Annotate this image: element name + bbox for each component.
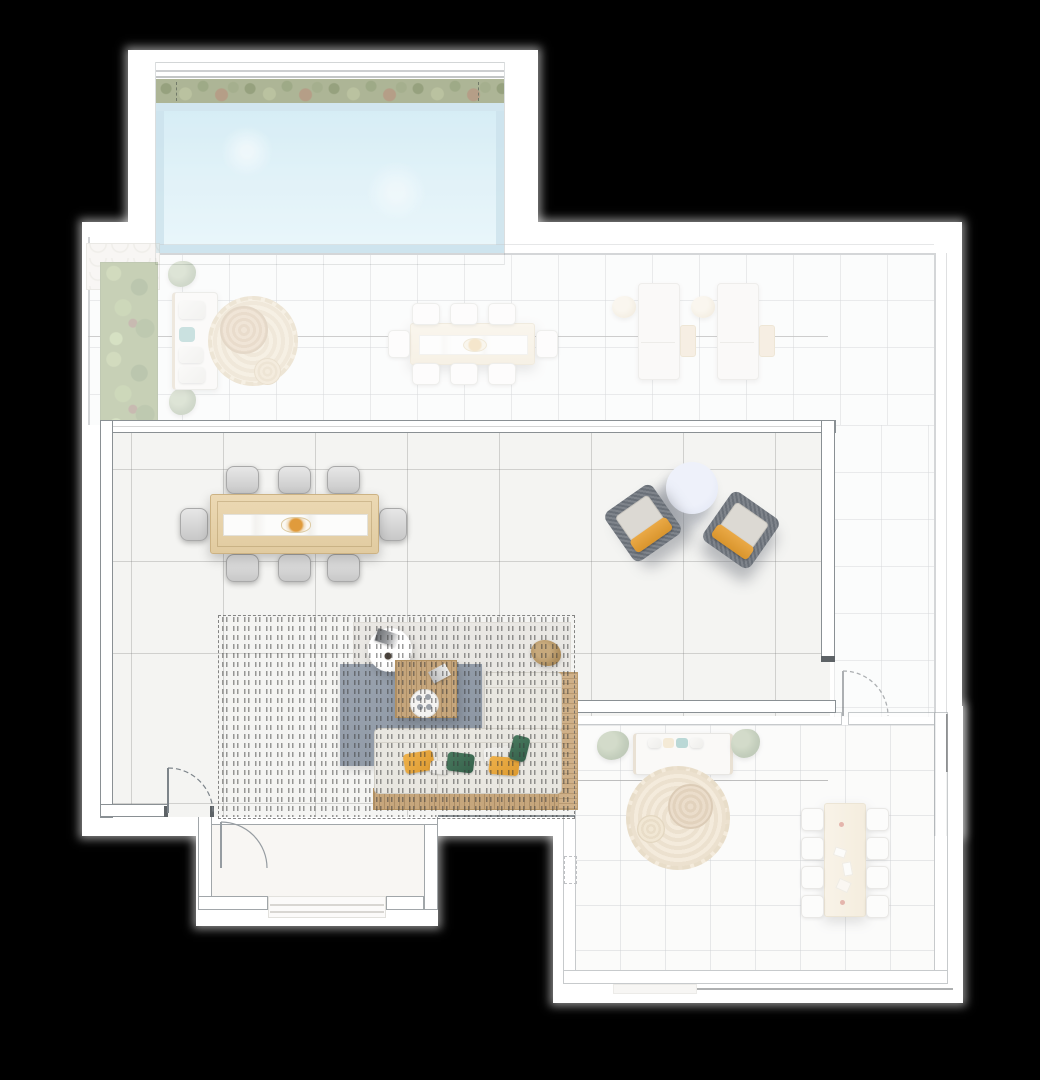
main-bottom-door-jamb-left: [164, 806, 168, 817]
dining-chair-bottom-2: [278, 554, 311, 582]
round-side-table: [666, 462, 718, 514]
main-wall-top-midline: [103, 426, 833, 427]
living-dining-room: [0, 0, 1040, 1080]
serving-platter: [281, 517, 311, 533]
dining-chair-top-2: [278, 466, 311, 494]
dining-chair-top-3: [327, 466, 360, 494]
dining-chair-top-1: [226, 466, 259, 494]
dining-chair-end-left: [180, 508, 208, 541]
dining-chair-end-right: [379, 508, 407, 541]
main-wall-bottom-right: [575, 700, 836, 713]
dining-chair-bottom-3: [327, 554, 360, 582]
pergola-slat-overlay: [222, 617, 572, 817]
main-wall-right: [821, 420, 835, 660]
main-bottom-door-jamb-right: [210, 806, 214, 817]
main-right-door-jamb-top: [821, 656, 835, 662]
dining-chair-bottom-1: [226, 554, 259, 582]
main-wall-bottom-left: [100, 804, 168, 817]
dining-table: [210, 494, 379, 554]
main-wall-left: [100, 420, 113, 818]
floor-plan-canvas: [0, 0, 1040, 1080]
